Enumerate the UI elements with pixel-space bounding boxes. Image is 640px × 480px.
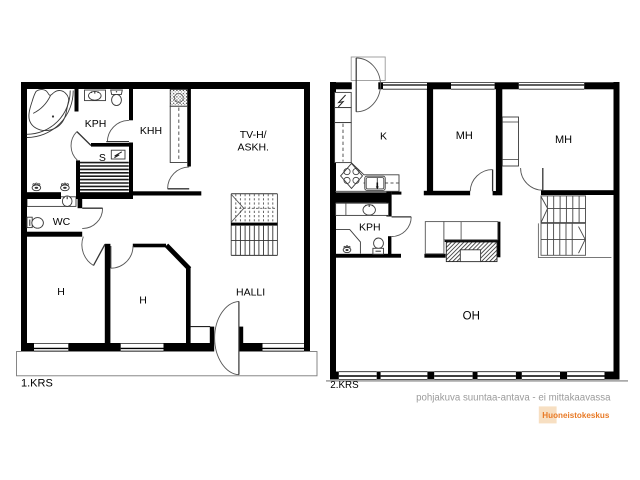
svg-text:KPH: KPH: [359, 222, 381, 234]
svg-text:WC: WC: [53, 216, 71, 228]
svg-text:MH: MH: [555, 134, 572, 146]
svg-text:OH: OH: [463, 310, 480, 322]
svg-text:HALLI: HALLI: [236, 287, 265, 299]
svg-text:KHH: KHH: [140, 125, 162, 137]
svg-text:ASKH.: ASKH.: [237, 142, 269, 154]
svg-text:TV-H/: TV-H/: [240, 129, 267, 141]
svg-text:H: H: [139, 295, 147, 307]
svg-text:K: K: [380, 131, 387, 143]
svg-text:S: S: [99, 152, 106, 164]
svg-text:KPH: KPH: [85, 118, 107, 130]
svg-text:1.KRS: 1.KRS: [21, 377, 53, 389]
svg-text:pohjakuva suuntaa-antava - ei: pohjakuva suuntaa-antava - ei mittakaava…: [416, 393, 611, 404]
svg-text:Huoneistokeskus: Huoneistokeskus: [542, 411, 610, 420]
svg-text:2.KRS: 2.KRS: [330, 380, 359, 391]
svg-text:MH: MH: [456, 130, 473, 142]
svg-text:H: H: [57, 286, 65, 298]
